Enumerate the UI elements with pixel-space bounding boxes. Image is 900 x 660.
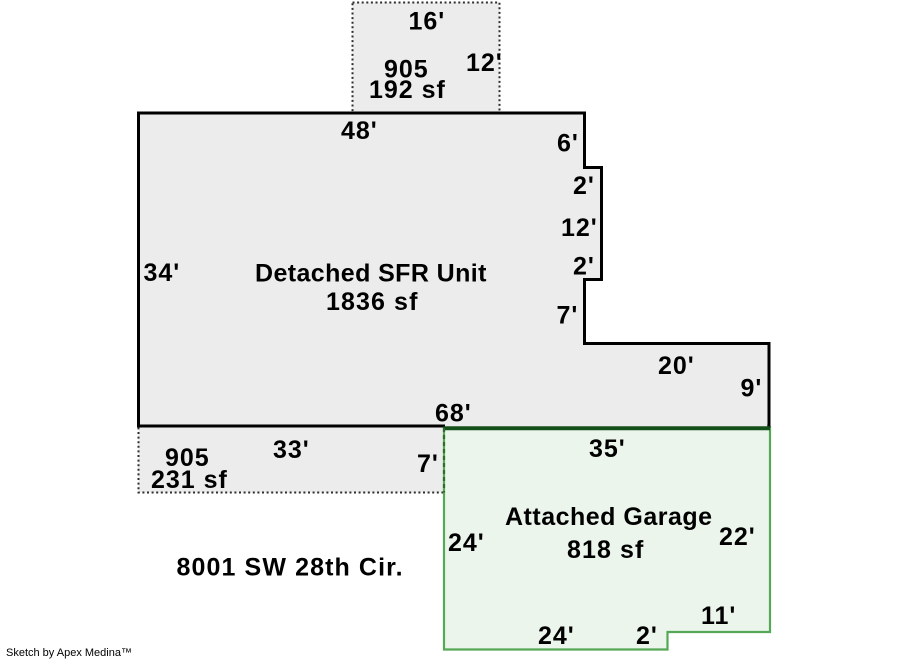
svg-text:12': 12'	[561, 214, 598, 242]
svg-text:11': 11'	[701, 602, 736, 630]
svg-text:Sketch by Apex Medina™: Sketch by Apex Medina™	[6, 647, 132, 659]
svg-text:35': 35'	[589, 435, 626, 463]
svg-text:6': 6'	[557, 130, 579, 158]
svg-text:48': 48'	[341, 117, 378, 145]
svg-text:7': 7'	[417, 450, 439, 478]
svg-text:22': 22'	[719, 523, 756, 551]
svg-text:Detached SFR Unit: Detached SFR Unit	[255, 259, 487, 287]
svg-text:2': 2'	[636, 622, 658, 650]
svg-text:34': 34'	[144, 259, 181, 287]
svg-text:818 sf: 818 sf	[567, 536, 645, 564]
svg-text:Attached Garage: Attached Garage	[505, 503, 713, 531]
svg-text:24': 24'	[448, 529, 485, 557]
svg-text:24': 24'	[538, 622, 575, 650]
svg-text:68': 68'	[435, 399, 472, 427]
svg-text:231 sf: 231 sf	[151, 466, 228, 494]
svg-text:7': 7'	[557, 301, 579, 329]
svg-text:192 sf: 192 sf	[369, 76, 446, 104]
svg-text:20': 20'	[658, 352, 695, 380]
svg-text:1836 sf: 1836 sf	[326, 288, 419, 316]
svg-text:9': 9'	[741, 375, 763, 403]
svg-text:8001 SW 28th Cir.: 8001 SW 28th Cir.	[177, 553, 404, 581]
svg-text:33': 33'	[273, 436, 310, 464]
svg-text:2': 2'	[573, 172, 595, 200]
svg-text:16': 16'	[409, 8, 446, 36]
svg-text:12': 12'	[466, 49, 503, 77]
svg-text:2': 2'	[573, 253, 595, 281]
